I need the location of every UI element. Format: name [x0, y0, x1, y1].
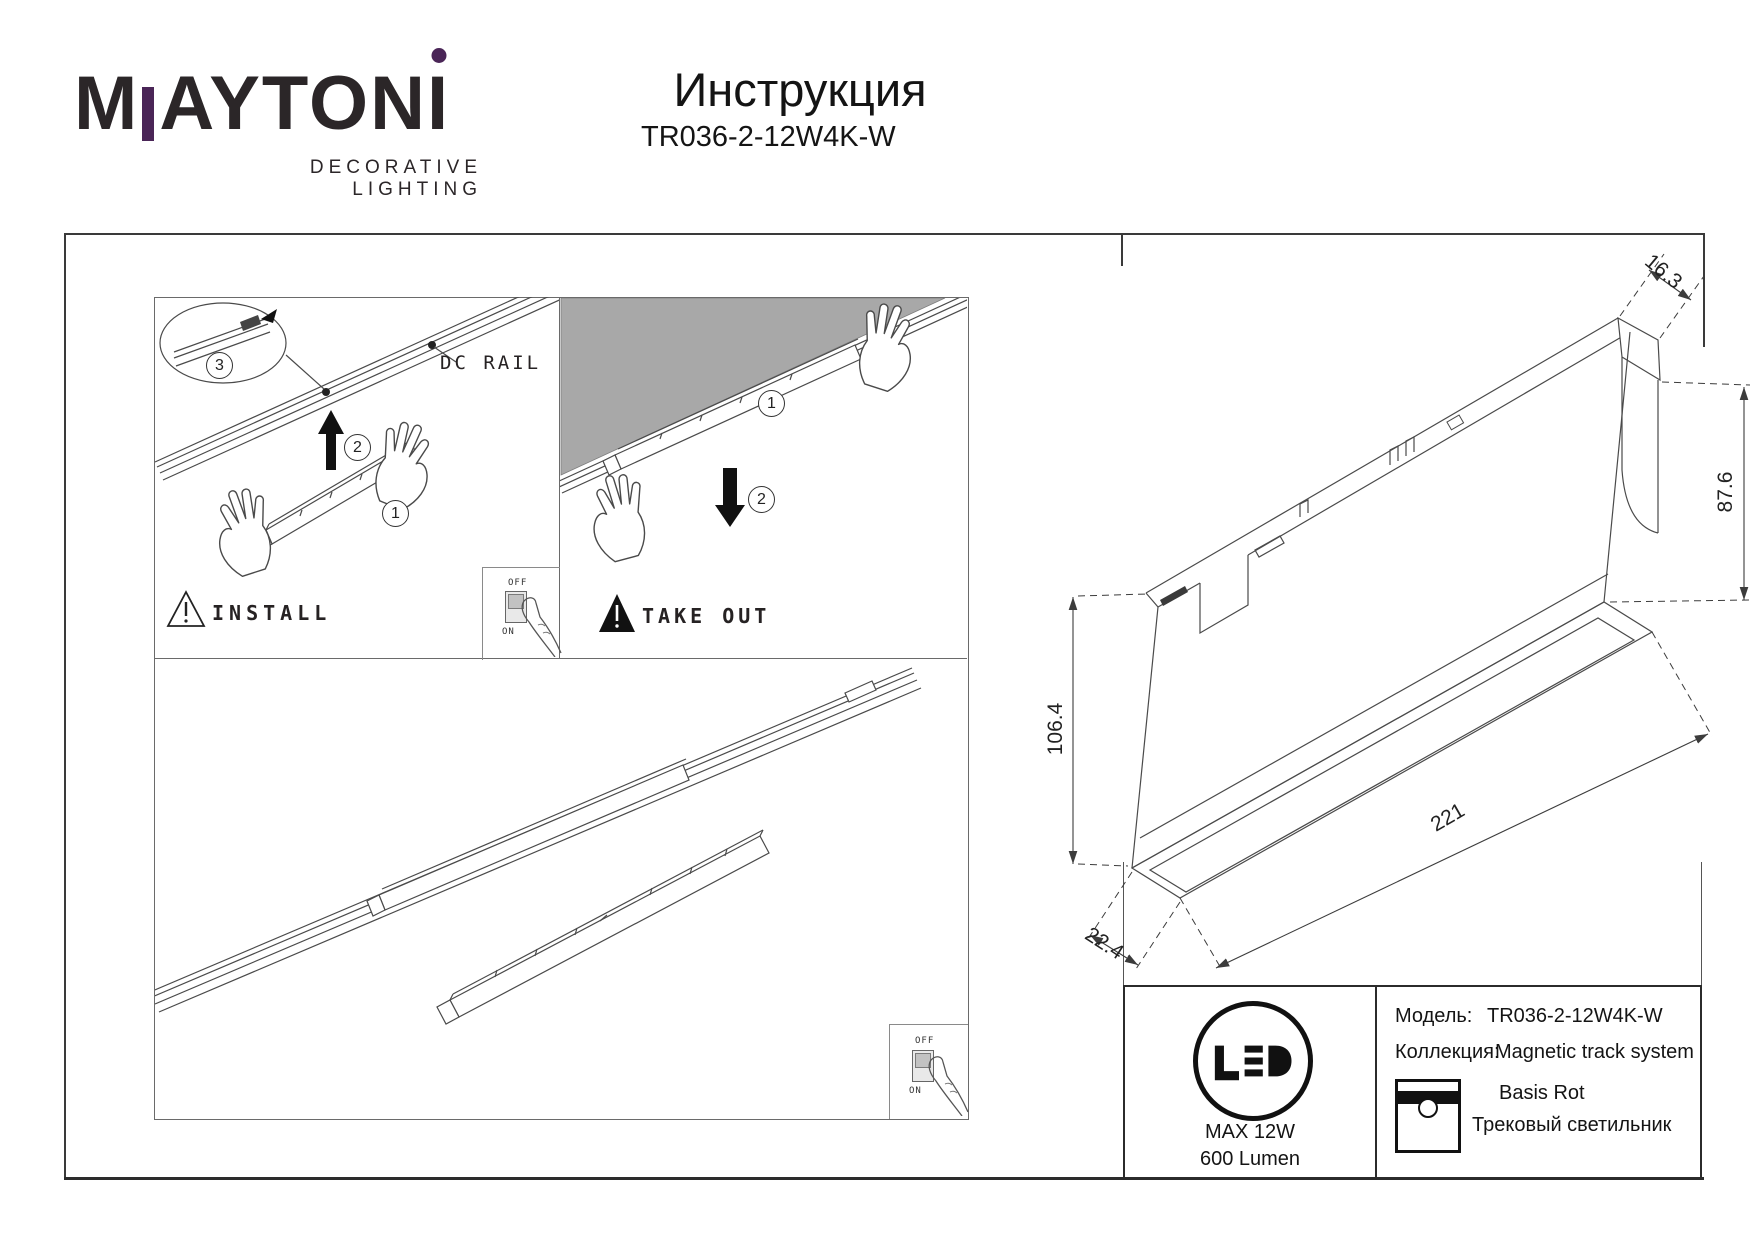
rail-point-dot: [322, 388, 330, 396]
arrow-up-icon: [318, 410, 344, 470]
hand-left: [581, 469, 657, 565]
logo-purple-bar-icon: [142, 87, 154, 141]
model-value: TR036-2-12W4K-W: [1487, 1005, 1663, 1028]
logo-letters-ayton: AYTON: [159, 66, 427, 142]
mount-notch: [1200, 555, 1248, 633]
maytoni-logo: M AYTON I: [74, 66, 450, 142]
switch-off-label: OFF: [915, 1036, 934, 1046]
step-2-badge: 2: [344, 434, 371, 461]
frame-left-rule: [64, 233, 66, 1180]
install-caption: INSTALL: [212, 601, 331, 625]
dim-front-height: 87.6: [1714, 472, 1738, 513]
instruction-sheet: M AYTON I DECORATIVE LIGHTING Инструкция…: [0, 0, 1754, 1241]
page-model-number: TR036-2-12W4K-W: [641, 121, 896, 154]
led-spec-cell: MAX 12W 600 Lumen: [1125, 987, 1377, 1178]
model-label: Модель:: [1395, 1005, 1472, 1028]
dc-rail-label: DC RAIL: [440, 352, 541, 374]
arrow-down-icon: [715, 468, 745, 527]
track-profile-icon: [1395, 1079, 1461, 1153]
series-name: Basis Rot: [1499, 1082, 1585, 1105]
floating-module: [450, 836, 769, 1017]
switch-off-label: OFF: [508, 578, 527, 588]
overview-diagram: [155, 660, 967, 1118]
pressing-finger-icon: [925, 1054, 969, 1116]
product-type: Трековый светильник: [1472, 1114, 1671, 1137]
step-2-badge: 2: [748, 486, 775, 513]
mounted-module: [379, 765, 689, 910]
hand-right: [362, 415, 446, 514]
power-switch-overview: OFF ON: [889, 1024, 967, 1118]
logo-purple-dot-icon: [431, 48, 446, 63]
logo-letter-m: M: [74, 66, 139, 142]
page-title: Инструкция: [560, 62, 1040, 117]
luminous-flux: 600 Lumen: [1125, 1148, 1375, 1171]
led-letters-icon: [1211, 1039, 1295, 1083]
led-logo: [1193, 1001, 1313, 1121]
model-spec-cell: Модель: TR036-2-12W4K-W Коллекция: Magne…: [1377, 987, 1700, 1178]
step-3-badge: 3: [206, 352, 233, 379]
dim-total-height: 106.4: [1044, 703, 1068, 756]
dimension-drawing: [940, 200, 1754, 1000]
collection-value: Magnetic track system: [1495, 1041, 1694, 1064]
step-1-badge: 1: [758, 390, 785, 417]
takeout-caption: TAKE OUT: [642, 604, 770, 628]
power-switch-install: OFF ON: [482, 567, 559, 659]
logo-letter-i: I: [427, 66, 450, 142]
switch-on-label: ON: [502, 627, 515, 637]
step-1-badge: 1: [382, 500, 409, 527]
collection-label: Коллекция:: [1395, 1041, 1500, 1064]
spec-table: MAX 12W 600 Lumen Модель: TR036-2-12W4K-…: [1123, 985, 1702, 1180]
max-power: MAX 12W: [1125, 1121, 1375, 1144]
pressing-finger-icon: [518, 595, 562, 657]
logo-tagline: DECORATIVE LIGHTING: [226, 157, 482, 201]
switch-on-label: ON: [909, 1086, 922, 1096]
